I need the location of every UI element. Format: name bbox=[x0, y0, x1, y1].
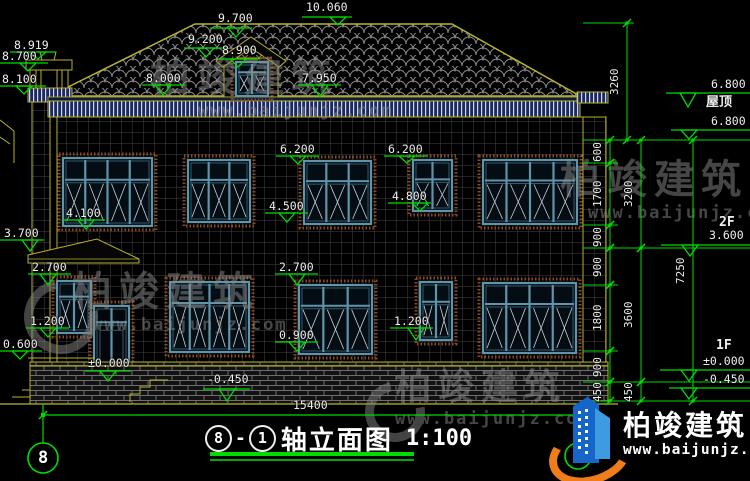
level-triangle-icon bbox=[100, 371, 116, 381]
level-triangle-icon bbox=[681, 370, 697, 381]
level-triangle-icon bbox=[408, 328, 424, 340]
level-triangle-icon bbox=[22, 240, 38, 251]
level-triangle-icon bbox=[155, 85, 171, 95]
logo-building-icon-2 bbox=[595, 408, 610, 459]
level-triangle-icon bbox=[289, 274, 305, 285]
company-logo: 柏竣建筑 www.baijunjz.com bbox=[545, 392, 750, 481]
level-triangle-icon bbox=[312, 85, 328, 97]
level-triangle-icon bbox=[399, 156, 415, 163]
level-triangle-icon bbox=[198, 48, 214, 57]
level-triangle-icon bbox=[40, 274, 56, 285]
title-underline-thin bbox=[210, 459, 414, 461]
logo-url-text: www.baijunjz.com bbox=[623, 442, 750, 458]
level-triangle-icon bbox=[682, 245, 698, 256]
title-scale: 1:100 bbox=[406, 426, 472, 451]
title-axis-start: 8 bbox=[205, 425, 232, 452]
cad-elevation-drawing: 柏竣建筑 www.baijunjz.com 柏竣建筑 www.baijunjz.… bbox=[0, 0, 750, 481]
level-triangle-icon bbox=[40, 328, 56, 337]
level-triangle-icon bbox=[290, 156, 306, 164]
title-axis-end: 1 bbox=[249, 425, 276, 452]
logo-brand-text: 柏竣建筑 bbox=[623, 404, 747, 444]
level-triangle-icon bbox=[12, 351, 28, 359]
title-axis-separator: - bbox=[235, 428, 246, 449]
level-triangle-icon bbox=[228, 28, 244, 37]
level-triangle-icon bbox=[30, 52, 46, 59]
level-triangle-icon bbox=[219, 389, 235, 401]
level-triangle-icon bbox=[78, 220, 94, 229]
level-triangle-icon bbox=[20, 63, 36, 71]
level-triangle-icon bbox=[330, 17, 346, 25]
axis-bubble bbox=[28, 443, 58, 473]
level-triangle-icon bbox=[680, 93, 696, 107]
level-triangle-icon bbox=[412, 203, 428, 211]
level-triangle-icon bbox=[230, 59, 246, 67]
level-triangle-icon bbox=[289, 342, 305, 351]
level-triangle-icon bbox=[16, 86, 32, 94]
title-underline bbox=[210, 452, 414, 456]
level-triangle-icon bbox=[279, 213, 295, 222]
